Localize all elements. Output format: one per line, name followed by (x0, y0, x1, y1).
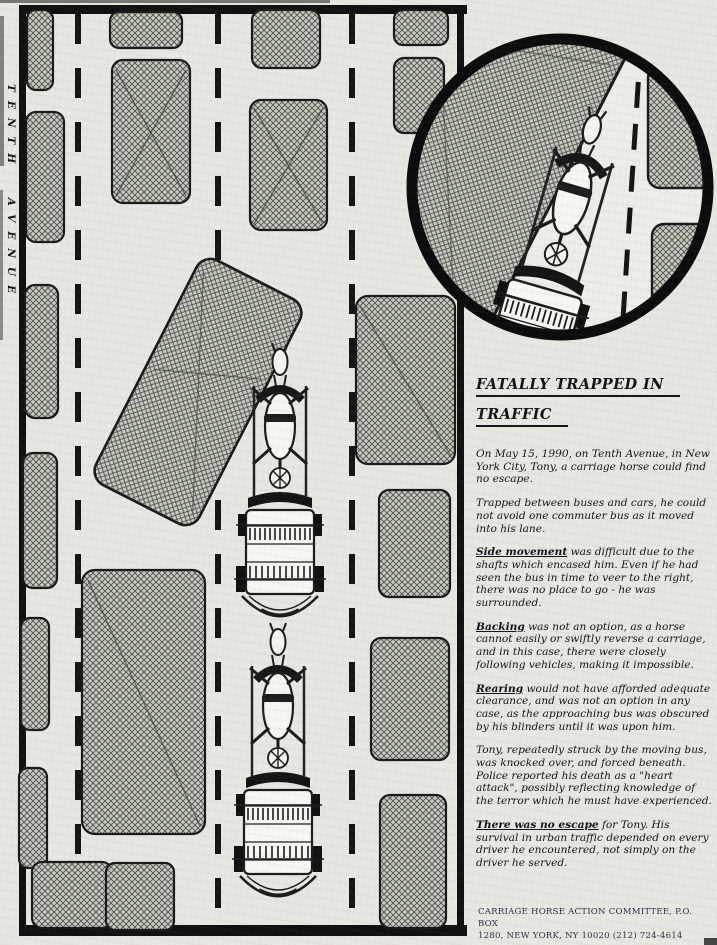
article-paragraph: Backing was not an option, as a horse ca… (476, 621, 712, 672)
parked-vehicle (106, 863, 174, 930)
paragraph-text: Tony, repeatedly struck by the moving bu… (476, 744, 712, 807)
parked-vehicle (110, 12, 182, 48)
article-column: FATALLY TRAPPED IN TRAFFIC On May 15, 19… (476, 374, 712, 881)
paragraph-lead: Backing (476, 621, 525, 633)
article-title-line1: FATALLY TRAPPED IN (476, 376, 680, 397)
parked-vehicle (32, 862, 112, 928)
committee-contact: CARRIAGE HORSE ACTION COMMITTEE, P.O. BO… (478, 906, 710, 942)
parked-vehicle (380, 795, 446, 928)
parked-vehicle (379, 490, 450, 597)
committee-contact-line2: 1280, NEW YORK, NY 10020 (212) 724-4614 (478, 930, 710, 942)
parked-vehicle (252, 10, 320, 68)
paragraph-text: On May 15, 1990, on Tenth Avenue, in New… (476, 448, 710, 485)
paragraph-lead: Side movement (476, 546, 567, 558)
parked-vehicle (25, 285, 58, 418)
parked-vehicle (19, 768, 47, 868)
parked-vehicle (23, 453, 57, 588)
article-paragraph: Side movement was difficult due to the s… (476, 546, 712, 610)
article-paragraph: Rearing would not have afforded adequate… (476, 683, 712, 734)
paragraph-lead: There was no escape (476, 819, 599, 831)
paragraph-text: Trapped between buses and cars, he could… (476, 497, 706, 534)
article-paragraph: Tony, repeatedly struck by the moving bu… (476, 744, 712, 808)
article-title: FATALLY TRAPPED IN TRAFFIC (476, 374, 712, 434)
parked-vehicle (27, 10, 53, 90)
parked-vehicle (371, 638, 449, 760)
article-title-line2: TRAFFIC (476, 406, 568, 427)
article-paragraph: There was no escape for Tony. His surviv… (476, 819, 712, 870)
article-paragraph: Trapped between buses and cars, he could… (476, 497, 712, 535)
paragraph-lead: Rearing (476, 683, 523, 695)
parked-vehicle (21, 618, 49, 730)
street-name-label: TENTH AVENUE (5, 84, 17, 302)
horse-carriage-lower (232, 623, 324, 896)
article-paragraph: On May 15, 1990, on Tenth Avenue, in New… (476, 448, 712, 486)
traffic-vehicles (19, 10, 455, 930)
parked-vehicle (26, 112, 64, 242)
parked-vehicle (394, 10, 448, 45)
scanned-flyer-page: TENTH AVENUE FATALLY TRAPPED IN TRAFFIC … (0, 0, 717, 945)
committee-contact-line1: CARRIAGE HORSE ACTION COMMITTEE, P.O. BO… (478, 906, 710, 930)
